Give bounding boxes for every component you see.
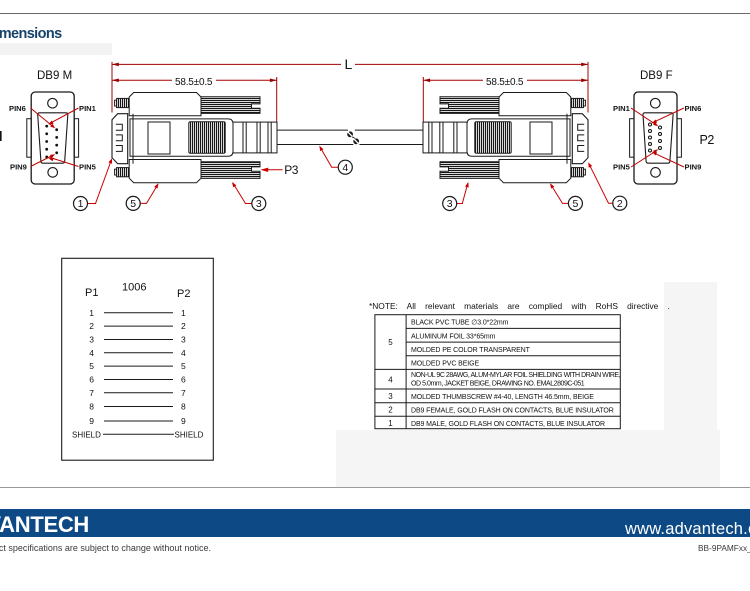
svg-text:1: 1 <box>388 419 393 428</box>
svg-text:1: 1 <box>78 198 84 210</box>
svg-text:3: 3 <box>256 198 262 210</box>
svg-text:3: 3 <box>181 335 186 345</box>
svg-text:2: 2 <box>617 198 623 210</box>
svg-text:SHIELD: SHIELD <box>175 430 204 439</box>
svg-text:L: L <box>345 56 353 72</box>
svg-text:58.5±0.5: 58.5±0.5 <box>486 77 524 88</box>
svg-text:P3: P3 <box>284 163 299 177</box>
svg-text:7: 7 <box>181 388 186 398</box>
svg-text:DB9 FEMALE, GOLD FLASH ON CONT: DB9 FEMALE, GOLD FLASH ON CONTACTS, BLUE… <box>411 408 614 415</box>
svg-text:2: 2 <box>388 406 393 415</box>
svg-text:OD 5.0mm, JACKET BEIGE, DRAWIN: OD 5.0mm, JACKET BEIGE, DRAWING NO. EMAL… <box>411 381 585 388</box>
svg-text:8: 8 <box>89 402 94 412</box>
svg-text:1: 1 <box>181 308 186 318</box>
svg-text:DB9 MALE, GOLD FLASH ON CONTAC: DB9 MALE, GOLD FLASH ON CONTACTS, BLUE I… <box>411 421 605 428</box>
svg-text:2: 2 <box>181 321 186 331</box>
svg-text:4: 4 <box>181 348 186 358</box>
svg-text:7: 7 <box>89 388 94 398</box>
svg-text:2: 2 <box>89 321 94 331</box>
svg-text:1006: 1006 <box>122 282 146 294</box>
svg-text:5: 5 <box>572 198 578 210</box>
svg-text:5: 5 <box>388 338 393 347</box>
svg-text:ALUMINUM FOIL 33*65mm: ALUMINUM FOIL 33*65mm <box>411 333 496 340</box>
svg-text:4: 4 <box>342 162 348 174</box>
svg-text:BLACK PVC TUBE ∅3.0*22mm: BLACK PVC TUBE ∅3.0*22mm <box>411 320 509 327</box>
svg-text:PIN9: PIN9 <box>685 163 702 172</box>
svg-text:MOLDED THUMBSCREW #4-40, LENGT: MOLDED THUMBSCREW #4-40, LENGTH 46.5mm, … <box>411 394 594 401</box>
svg-text:PIN1: PIN1 <box>613 104 631 113</box>
svg-text:4: 4 <box>89 348 94 358</box>
svg-text:MOLDED PVC BEIGE: MOLDED PVC BEIGE <box>411 361 479 368</box>
svg-text:3: 3 <box>447 198 453 210</box>
svg-text:P2: P2 <box>700 133 715 147</box>
svg-text:3: 3 <box>89 335 94 345</box>
svg-text:P1: P1 <box>85 287 98 299</box>
svg-text:58.5±0.5: 58.5±0.5 <box>175 77 213 88</box>
svg-text:PIN6: PIN6 <box>685 104 702 113</box>
svg-text:*NOTE: All relevant materials: *NOTE: All relevant materials are compli… <box>369 301 670 311</box>
svg-text:NON-UL 9C 28AWG, ALUM-MYLAR FO: NON-UL 9C 28AWG, ALUM-MYLAR FOIL SHIELDI… <box>411 372 621 379</box>
svg-text:5: 5 <box>181 361 186 371</box>
svg-text:P2: P2 <box>177 288 190 300</box>
svg-text:5: 5 <box>130 198 136 210</box>
svg-text:PIN1: PIN1 <box>79 104 97 113</box>
svg-text:DB9 M: DB9 M <box>37 70 72 82</box>
svg-text:4: 4 <box>388 375 393 384</box>
svg-text:1: 1 <box>89 308 94 318</box>
svg-text:9: 9 <box>89 416 94 426</box>
svg-text:PIN5: PIN5 <box>613 163 631 172</box>
svg-text:PIN6: PIN6 <box>9 104 26 113</box>
svg-text:3: 3 <box>388 392 393 401</box>
svg-text:MOLDED PE COLOR TRANSPARENT: MOLDED PE COLOR TRANSPARENT <box>411 347 531 354</box>
svg-text:8: 8 <box>181 402 186 412</box>
svg-text:DB9 F: DB9 F <box>640 70 673 82</box>
svg-text:9: 9 <box>181 416 186 426</box>
svg-text:6: 6 <box>89 375 94 385</box>
svg-text:SHIELD: SHIELD <box>72 430 101 439</box>
svg-text:PIN9: PIN9 <box>10 163 27 172</box>
svg-text:6: 6 <box>181 375 186 385</box>
svg-text:5: 5 <box>89 361 94 371</box>
svg-text:PIN5: PIN5 <box>79 163 97 172</box>
